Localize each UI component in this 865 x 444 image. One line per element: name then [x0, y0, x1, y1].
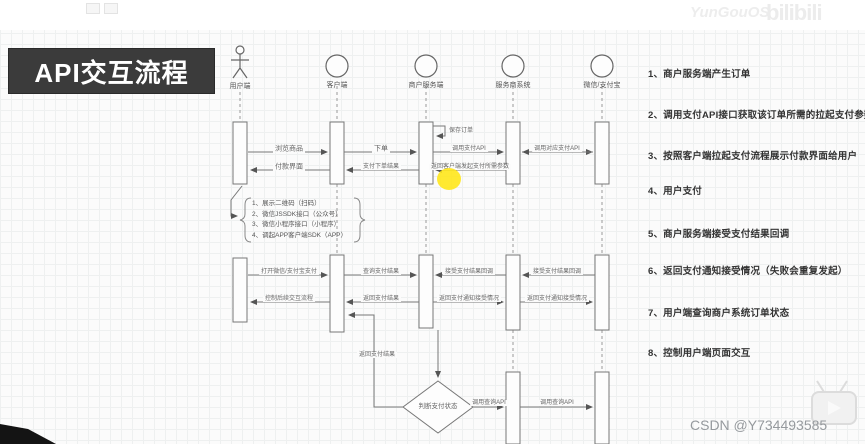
- message-label-control-flow: 控制后续交互流程: [263, 296, 315, 302]
- csdn-watermark: CSDN @Y734493585: [690, 417, 827, 433]
- message-label-recv-callback-2: 接受支付结果回调: [531, 269, 583, 275]
- message-label-return-notify-2: 返回支付通知接受情况: [525, 296, 589, 302]
- note-line-1: 1、展示二维码（扫码）: [252, 199, 362, 210]
- note-line-4: 4、调起APP客户端SDK（APP）: [252, 231, 362, 242]
- decision-label-judge-status: 判断支付状态: [417, 404, 460, 411]
- message-label-browse: 浏览商品: [273, 146, 305, 153]
- payment-methods-note: 1、展示二维码（扫码） 2、微信JSSDK接口（公众号） 3、微信小程序接口（小…: [252, 199, 362, 241]
- message-label-recv-callback-1: 接受支付结果回调: [443, 269, 495, 275]
- message-label-open-wechat-alipay: 打开微信/支付宝支付: [259, 269, 319, 275]
- client-actor-icon: [326, 55, 348, 77]
- player-mini-icon-2: [104, 3, 118, 14]
- message-label-return-result-elbow: 返回支付结果: [357, 352, 397, 358]
- page-title: API交互流程: [34, 53, 188, 90]
- actor-label-provider-system: 服务商系统: [496, 80, 531, 90]
- step-item-5: 5、商户服务端接受支付结果回调: [648, 226, 789, 240]
- merchant-server-actor-icon: [415, 55, 437, 77]
- message-label-return-result: 返回支付结果: [361, 296, 401, 302]
- decision-flow-arrows: [349, 315, 592, 407]
- top-watermark-text: YunGouOS: [690, 4, 769, 21]
- message-label-call-query-api-2: 调用查询API: [538, 400, 576, 406]
- wechat-alipay-actor-icon: [591, 55, 613, 77]
- step-item-7: 7、用户端查询商户系统订单状态: [648, 305, 789, 319]
- message-label-call-channel-api: 调用对应支付API: [532, 146, 582, 152]
- actor-label-user: 用户端: [230, 81, 251, 91]
- diagram-title-box: API交互流程: [8, 48, 215, 94]
- actor-label-merchant-server: 商户服务端: [409, 80, 444, 90]
- step-item-2: 2、调用支付API接口获取该订单所需的拉起支付参数: [648, 107, 865, 121]
- actor-label-client: 客户端: [327, 80, 348, 90]
- step-item-6: 6、返回支付通知接受情况（失败会重复发起）: [648, 263, 847, 277]
- user-actor-icon: [231, 46, 249, 78]
- video-frame: YunGouOS bilibili API交互流程 用户端 客户端 商户服务端 …: [0, 0, 865, 444]
- note-line-2: 2、微信JSSDK接口（公众号）: [252, 210, 362, 221]
- message-label-place-order: 下单: [372, 146, 390, 153]
- step-item-8: 8、控制用户端页面交互: [648, 345, 750, 359]
- actor-circles: [326, 55, 613, 77]
- message-label-pay-ui: 付款界面: [273, 164, 305, 171]
- message-label-call-pay-api: 调用支付API: [450, 146, 488, 152]
- actor-label-wechat-alipay: 微信/支付宝: [584, 80, 621, 90]
- note-line-3: 3、微信小程序接口（小程序）: [252, 220, 362, 231]
- message-label-return-notify-1: 返回支付通知接受情况: [437, 296, 501, 302]
- message-label-order-result: 支付下单结果: [361, 164, 401, 170]
- provider-system-actor-icon: [502, 55, 524, 77]
- step-item-1: 1、商户服务端产生订单: [648, 66, 750, 80]
- player-corner-shape: [0, 424, 56, 444]
- player-mini-icon-1: [86, 3, 100, 14]
- yellow-highlight-mark: [437, 168, 461, 190]
- step-item-4: 4、用户支付: [648, 183, 702, 197]
- message-label-query-result: 查询支付结果: [361, 269, 401, 275]
- bilibili-logo: bilibili: [766, 0, 822, 26]
- message-label-save-order: 保存订单: [447, 128, 475, 134]
- step-item-3: 3、按照客户端拉起支付流程展示付款界面给用户: [648, 148, 857, 162]
- message-label-call-query-api-1: 调用查询API: [470, 400, 508, 406]
